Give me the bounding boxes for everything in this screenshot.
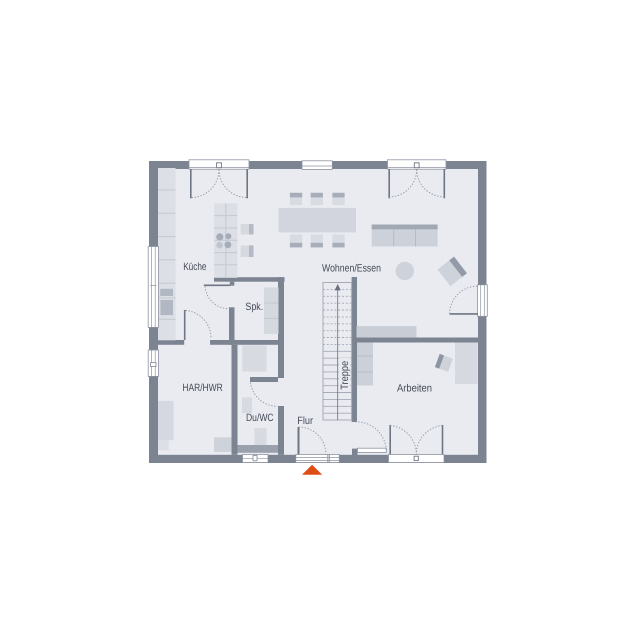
svg-text:Flur: Flur: [297, 415, 313, 427]
svg-text:Spk.: Spk.: [245, 301, 263, 313]
svg-text:Wohnen/Essen: Wohnen/Essen: [322, 262, 381, 274]
svg-text:HAR/HWR: HAR/HWR: [182, 382, 223, 394]
svg-text:Du/WC: Du/WC: [246, 412, 274, 424]
svg-text:Arbeiten: Arbeiten: [397, 383, 432, 395]
svg-text:Treppe: Treppe: [339, 361, 351, 390]
svg-text:Küche: Küche: [183, 261, 206, 273]
